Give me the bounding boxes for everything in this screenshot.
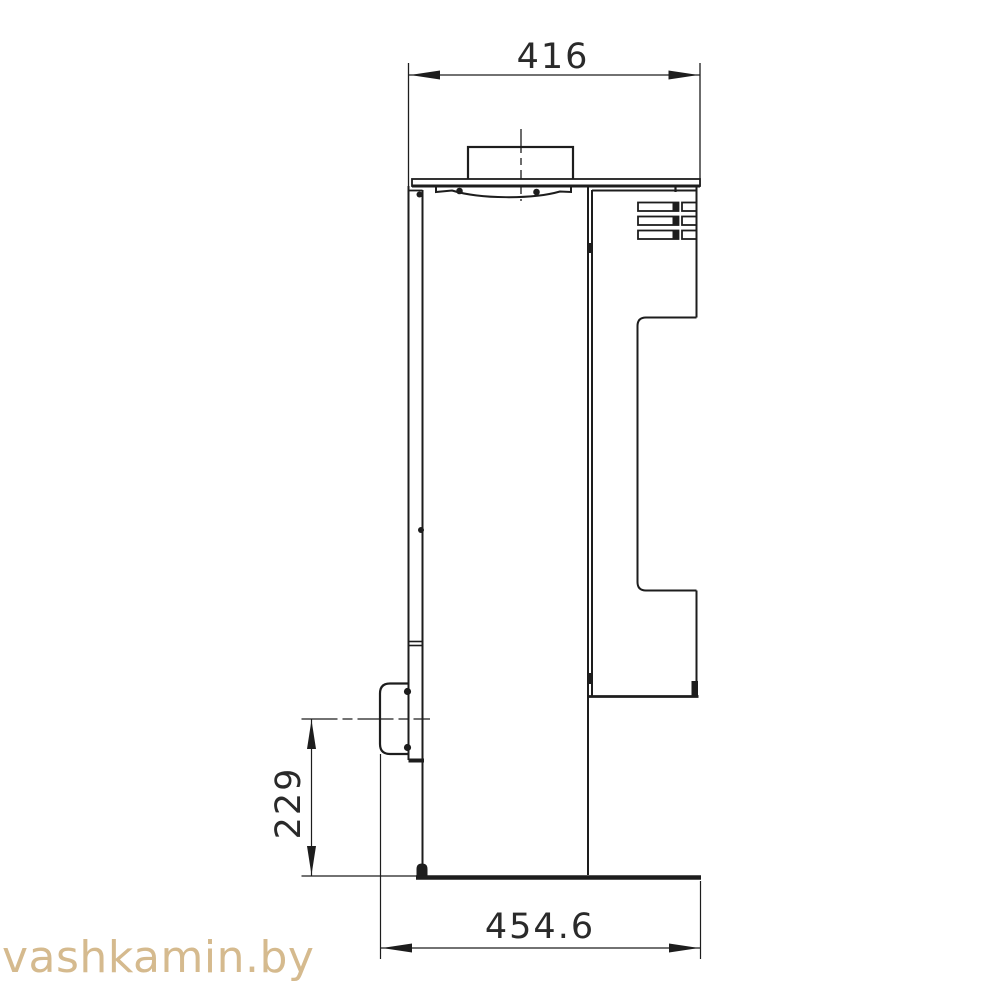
side-access-panel xyxy=(638,318,697,591)
door-hinge-top xyxy=(417,192,423,198)
panel-fastener-lower xyxy=(588,673,593,684)
vent-slot-1-end xyxy=(673,203,679,212)
vent-slot-2 xyxy=(638,217,679,226)
vent-hole-1 xyxy=(682,203,697,212)
dimension-top-width-label: 416 xyxy=(517,37,590,77)
front-body xyxy=(417,187,589,876)
arrowhead-right xyxy=(669,944,699,953)
rear-foot xyxy=(692,681,699,696)
rear-panel xyxy=(588,187,699,697)
arrowhead-left xyxy=(410,71,440,80)
panel-fastener-upper xyxy=(588,243,593,253)
dimension-handle-height: 229 xyxy=(269,719,430,876)
arrowhead-up xyxy=(307,720,316,749)
flue-collar xyxy=(468,129,573,201)
vent-slot-2-end xyxy=(673,217,679,226)
front-top-arc xyxy=(436,187,571,198)
handle-pin-top xyxy=(404,688,411,695)
handle-pin-bottom xyxy=(404,744,411,751)
front-door-panel xyxy=(409,186,425,761)
arc-path xyxy=(436,187,571,198)
watermark-text: vashkamin.by xyxy=(2,932,314,983)
vent-slot-1 xyxy=(638,203,679,212)
stove-side-view-drawing: 416 xyxy=(0,0,1000,1000)
arrowhead-down xyxy=(307,846,316,875)
dimension-base-depth-label: 454.6 xyxy=(485,907,595,947)
door-hinge-mid xyxy=(418,527,424,533)
technical-drawing-canvas: 416 xyxy=(0,0,1000,1000)
vent-grille xyxy=(638,203,697,240)
arrowhead-right xyxy=(669,71,699,80)
arrowhead-left xyxy=(382,944,412,953)
vent-hole-3 xyxy=(682,231,697,240)
vent-hole-2 xyxy=(682,217,697,226)
arc-screw-left xyxy=(456,188,463,195)
dimension-handle-height-label: 229 xyxy=(269,767,309,840)
arc-screw-right xyxy=(533,189,540,196)
vent-slot-3 xyxy=(638,231,679,240)
dimension-base-depth: 454.6 xyxy=(381,754,701,959)
vent-slot-3-end xyxy=(673,231,679,240)
front-foot xyxy=(417,864,428,877)
base-plate xyxy=(302,876,702,878)
dimension-top-width: 416 xyxy=(409,37,701,186)
